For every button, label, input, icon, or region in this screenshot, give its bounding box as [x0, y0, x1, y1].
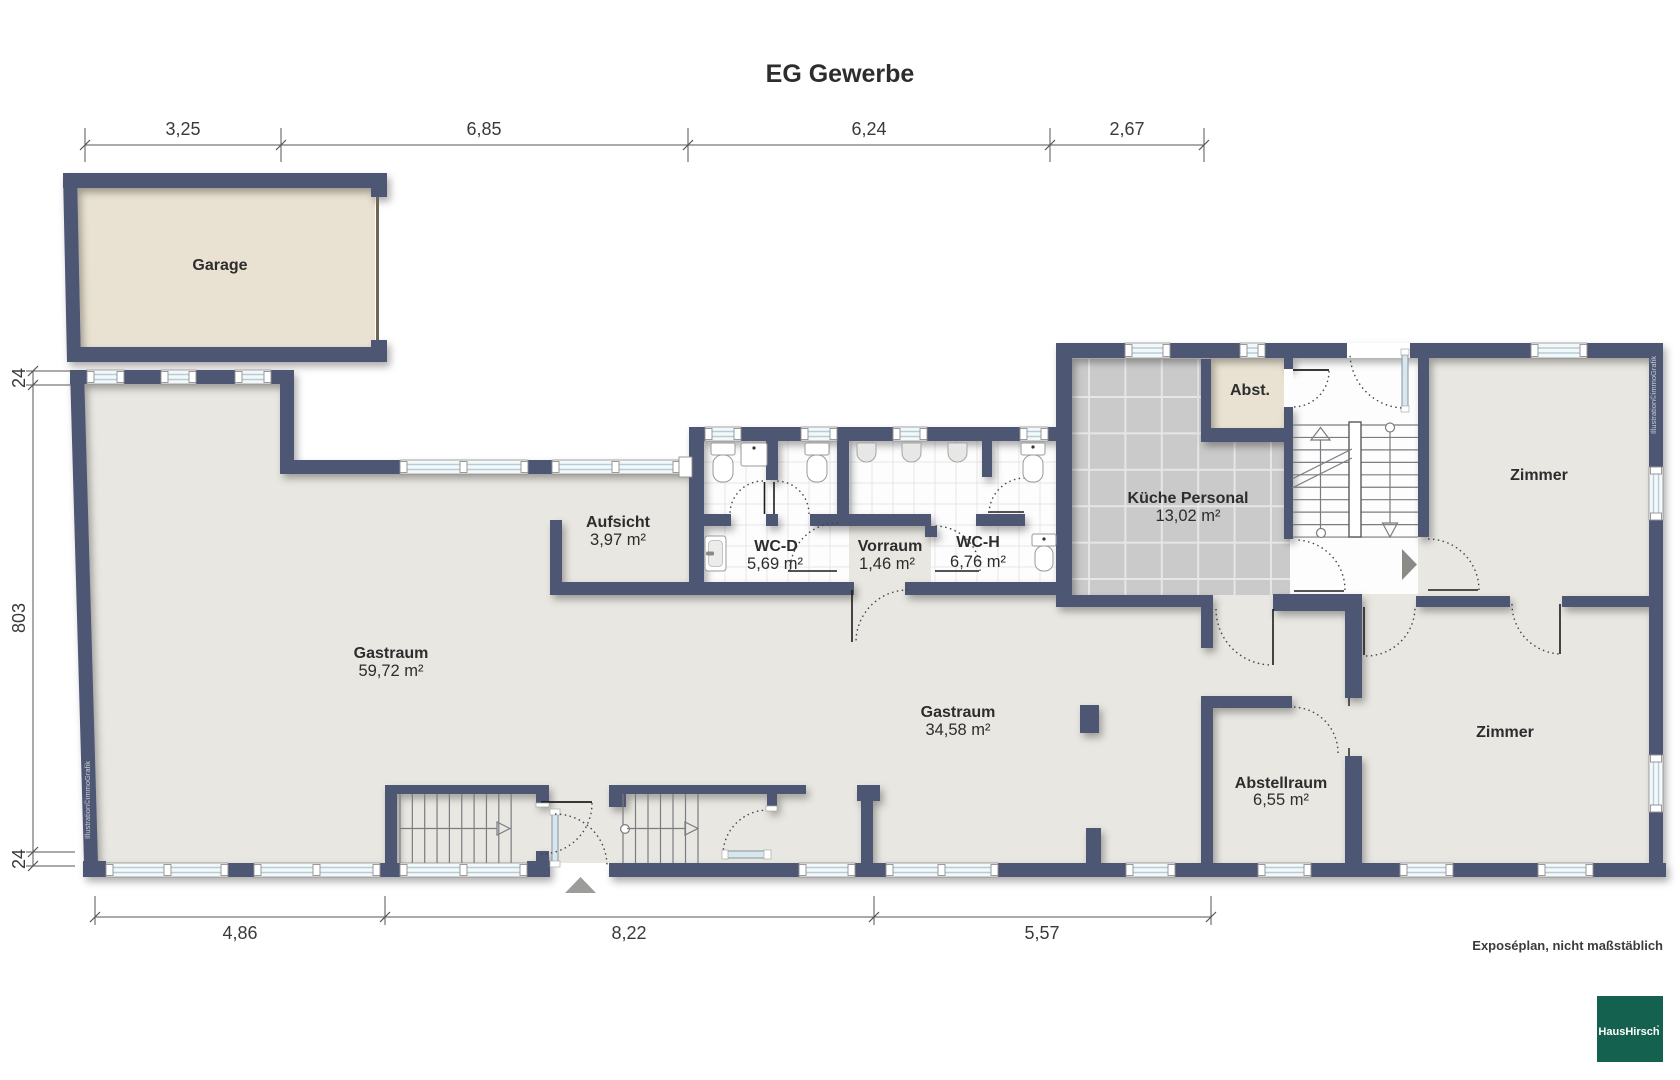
svg-text:WC-D: WC-D: [754, 538, 798, 555]
svg-text:Zimmer: Zimmer: [1476, 724, 1534, 741]
svg-text:13,02 m²: 13,02 m²: [1155, 507, 1221, 525]
svg-text:4,86: 4,86: [222, 923, 257, 943]
svg-text:Aufsicht: Aufsicht: [586, 514, 651, 531]
svg-text:Abstellraum: Abstellraum: [1235, 775, 1327, 792]
svg-text:EG Gewerbe: EG Gewerbe: [766, 60, 915, 88]
svg-text:5,69 m²: 5,69 m²: [747, 555, 803, 573]
svg-text:803: 803: [9, 603, 29, 633]
svg-text:24: 24: [9, 849, 29, 869]
svg-text:6,76 m²: 6,76 m²: [950, 553, 1006, 571]
svg-text:Vorraum: Vorraum: [858, 538, 923, 555]
svg-text:WC-H: WC-H: [956, 534, 1000, 551]
svg-text:Illustration©immoGrafik: Illustration©immoGrafik: [83, 761, 92, 839]
svg-text:HausHirsch: HausHirsch: [1598, 1026, 1659, 1038]
svg-text:Illustration©immoGrafik: Illustration©immoGrafik: [1649, 356, 1658, 434]
svg-text:1,46 m²: 1,46 m²: [859, 555, 915, 573]
svg-text:3,97 m²: 3,97 m²: [590, 531, 646, 549]
svg-text:Küche Personal: Küche Personal: [1128, 490, 1249, 507]
svg-text:34,58 m²: 34,58 m²: [925, 721, 991, 739]
svg-text:2,67: 2,67: [1109, 119, 1144, 139]
svg-text:Garage: Garage: [192, 257, 247, 274]
svg-text:6,24: 6,24: [851, 119, 886, 139]
svg-text:24: 24: [9, 368, 29, 388]
svg-text:Gastraum: Gastraum: [354, 645, 429, 662]
svg-text:3,25: 3,25: [165, 119, 200, 139]
svg-text:Exposéplan, nicht maßstäblich: Exposéplan, nicht maßstäblich: [1472, 938, 1663, 953]
svg-text:8,22: 8,22: [611, 923, 646, 943]
svg-text:Zimmer: Zimmer: [1510, 467, 1568, 484]
svg-text:5,57: 5,57: [1024, 923, 1059, 943]
svg-text:59,72 m²: 59,72 m²: [358, 662, 424, 680]
svg-text:Abst.: Abst.: [1230, 382, 1270, 399]
svg-text:6,55 m²: 6,55 m²: [1253, 791, 1309, 809]
svg-text:6,85: 6,85: [466, 119, 501, 139]
svg-text:Gastraum: Gastraum: [921, 704, 996, 721]
